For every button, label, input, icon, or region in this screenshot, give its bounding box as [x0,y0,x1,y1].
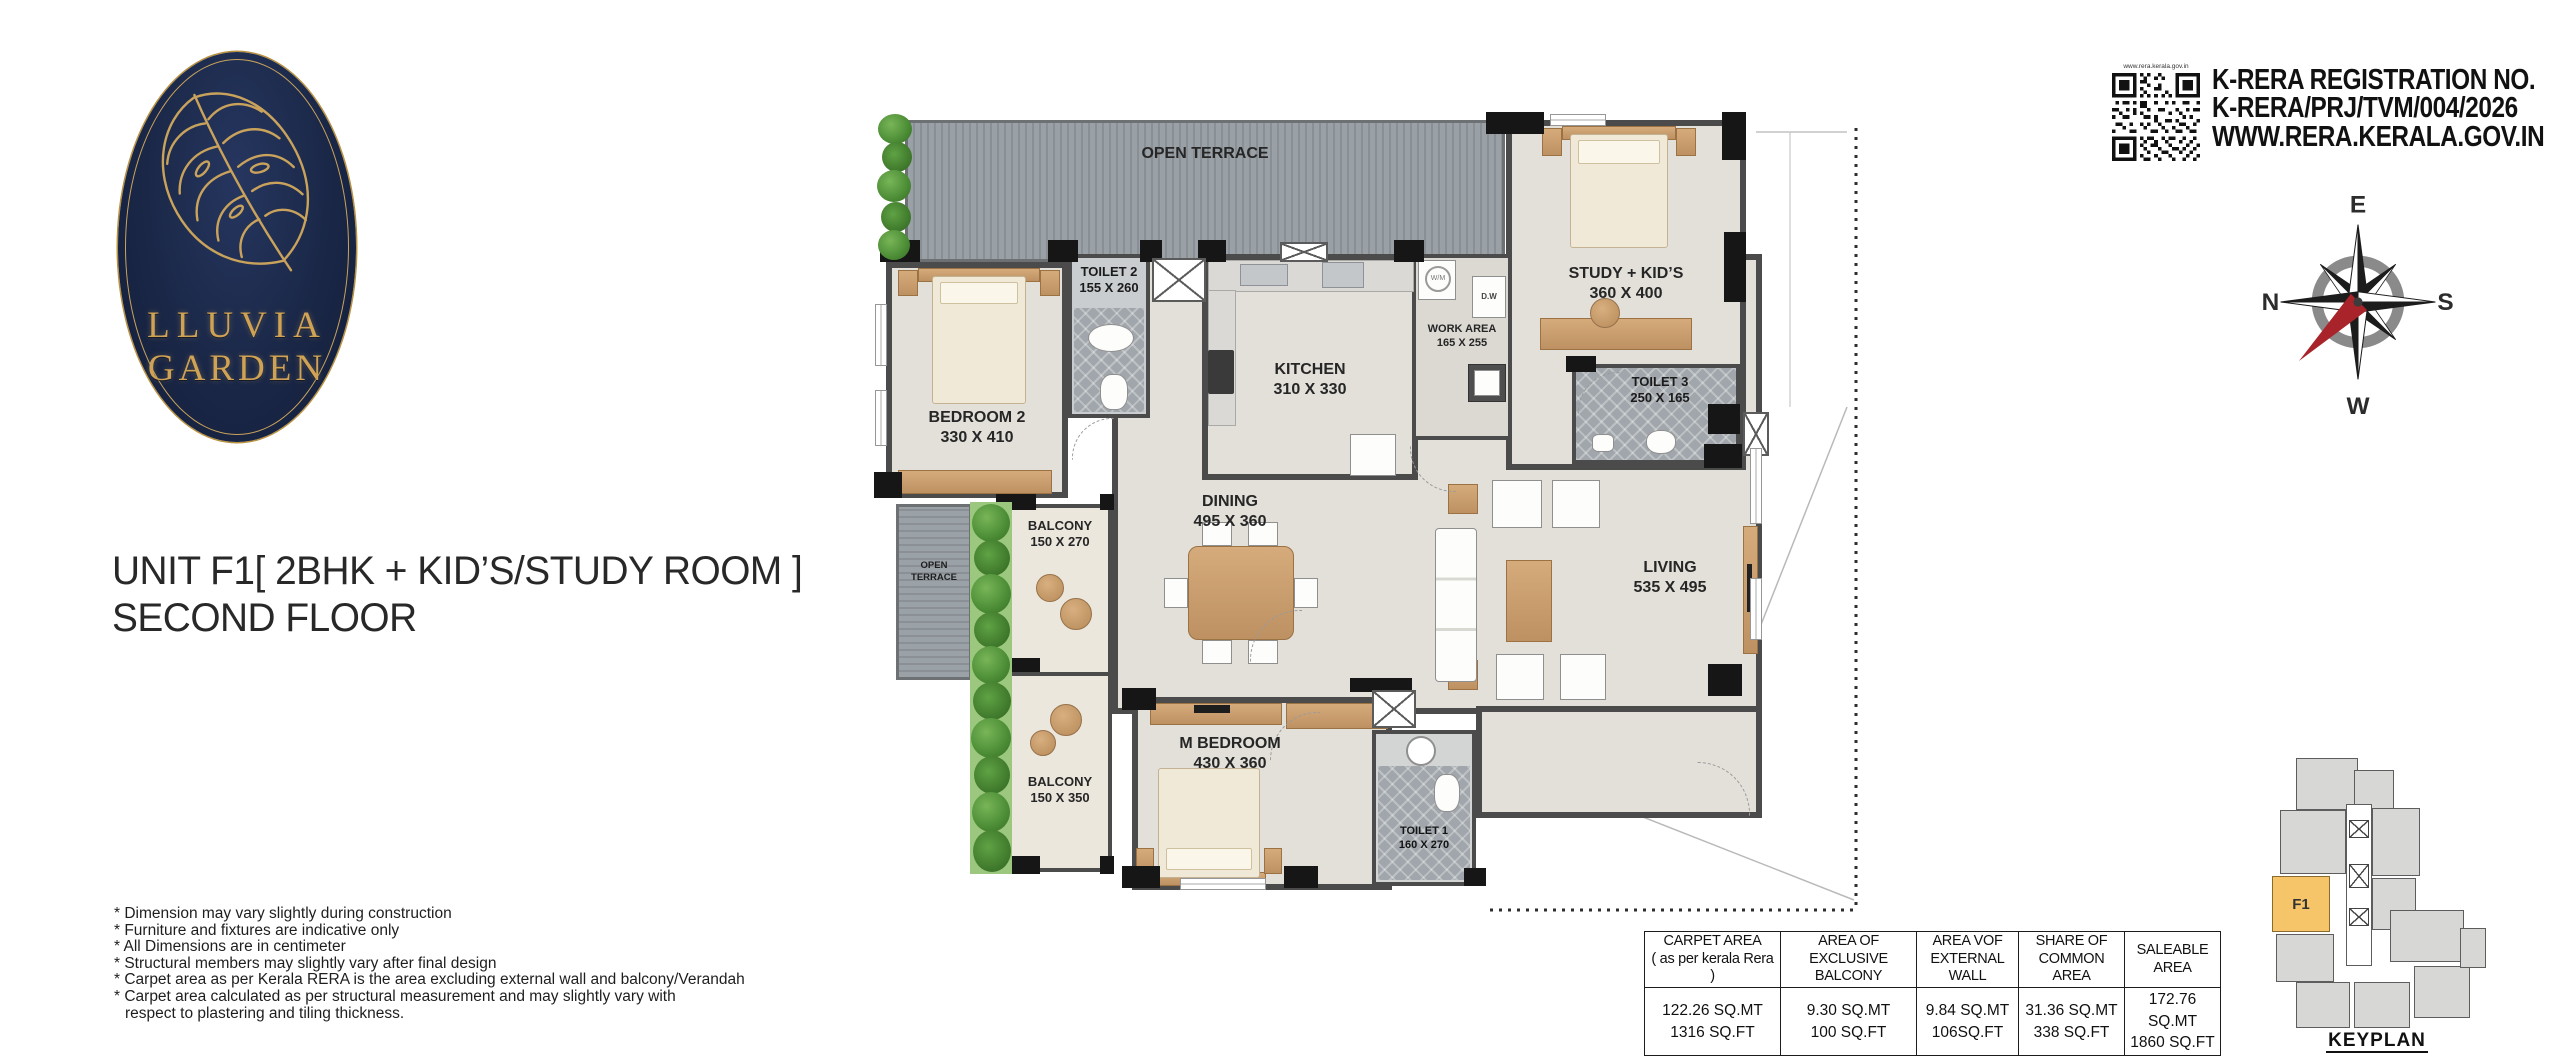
header-carpet-area: CARPET AREA ( as per kerala Rera ) [1645,932,1781,988]
plant [881,202,911,232]
wardrobe [898,470,1052,494]
qr-code [2112,73,2200,161]
toilet-wc [1100,374,1128,410]
value-saleable-area: 172.76 SQ.MT 1860 SQ.FT [2125,988,2221,1056]
value-external-wall: 9.84 SQ.MT 106SQ.FT [1917,988,2019,1056]
armchair [1560,654,1606,700]
label-work-area: WORK AREA 165 X 255 [1414,322,1510,351]
label-toilet3: TOILET 3 250 X 165 [1590,374,1730,407]
plant [974,612,1010,648]
label-bedroom2: BEDROOM 2 330 X 410 [892,408,1062,448]
plant [878,114,912,144]
label-study: STUDY + KID’S 360 X 400 [1526,264,1726,304]
wall-column [1122,688,1156,710]
kitchen-sink [1240,264,1288,286]
wall-column [1464,868,1486,886]
note-line: respect to plastering and tiling thickne… [114,1006,745,1023]
label-balcony2: BALCONY 150 X 350 [1010,774,1110,807]
balcony-table [1030,730,1056,756]
label-m-bedroom: M BEDROOM 430 X 360 [1140,734,1320,774]
window [875,304,887,366]
lluvia-garden-logo: LLUVIA GARDEN [118,52,356,442]
keyplan-block [2296,758,2358,810]
lift-shaft [1152,258,1206,302]
wall-column [1394,240,1424,262]
label-dining: DINING 495 X 360 [1150,492,1310,532]
room-open-terrace-left [896,504,972,680]
plant [882,142,912,172]
note-line: * Dimension may vary slightly during con… [114,906,745,923]
plant [973,830,1011,872]
toilet-basin [1406,736,1436,766]
header-saleable-area: SALEABLE AREA [2125,932,2221,988]
window [1550,114,1606,126]
plant [972,646,1010,684]
window [1750,448,1762,524]
plant [877,170,911,202]
logo-word-garden: GARDEN [118,347,356,390]
area-table: CARPET AREA ( as per kerala Rera ) AREA … [1644,931,2221,1056]
bed-pillow [940,282,1018,304]
label-living: LIVING 535 X 495 [1590,558,1750,598]
unit-title-line1: UNIT F1[ 2BHK + KID’S/STUDY ROOM ] [112,548,802,595]
armchair [1492,480,1542,528]
compass-label-east: E [2350,191,2366,218]
label-kitchen: KITCHEN 310 X 330 [1240,360,1380,400]
wall-column [1486,112,1544,134]
plant [972,792,1010,832]
keyplan-block [2460,928,2486,968]
toilet-basin [1592,434,1614,452]
value-carpet-area: 122.26 SQ.MT 1316 SQ.FT [1645,988,1781,1056]
value-common-area: 31.36 SQ.MT 338 SQ.FT [2019,988,2125,1056]
keyplan-label: KEYPLAN [2262,1030,2492,1052]
area-table-header-row: CARPET AREA ( as per kerala Rera ) AREA … [1645,932,2221,988]
note-line: * Carpet area as per Kerala RERA is the … [114,972,745,989]
logo-word-lluvia: LLUVIA [118,304,356,347]
plant [971,718,1011,758]
label-toilet1: TOILET 1 160 X 270 [1378,824,1470,853]
window [1180,878,1266,890]
plant [972,504,1010,542]
value-exclusive-balcony: 9.30 SQ.MT 100 SQ.FT [1781,988,1917,1056]
plant [973,682,1011,720]
note-line: * All Dimensions are in centimeter [114,939,745,956]
balcony-table [1036,574,1064,602]
keyplan-lift [2349,864,2369,888]
header-exclusive-balcony: AREA OF EXCLUSIVE BALCONY [1781,932,1917,988]
disclaimer-notes: * Dimension may vary slightly during con… [114,906,745,1022]
balcony-chair [1060,598,1092,630]
keyplan-block [2280,810,2346,874]
kitchen-counter [1208,260,1414,292]
nightstand [1542,128,1562,156]
duct-box [1280,242,1328,262]
dining-chair [1294,578,1318,608]
sofa [1435,528,1477,682]
dining-chair [1164,578,1188,608]
label-balcony1: BALCONY 150 X 270 [1010,518,1110,551]
unit-title-line2: SECOND FLOOR [112,595,802,642]
wall-column [1284,866,1318,888]
rera-line3: WWW.RERA.KERALA.GOV.IN [2212,123,2544,151]
wall-column [1708,404,1740,434]
nightstand [1264,848,1282,874]
wall-column [1100,494,1114,510]
compass-label-south: S [2437,289,2453,316]
keyplan-block [2414,966,2470,1018]
wall-column [1048,240,1078,262]
monstera-leaf-icon [136,58,336,298]
compass-label-west: W [2346,393,2370,420]
wall-column [874,472,902,498]
floor-plan: OPEN TERRACE STUDY + KID’S 360 X 400 TOI… [850,112,1862,914]
keyplan-block [2276,934,2334,982]
toilet-wc [1646,430,1676,454]
armchair [1496,654,1544,700]
armchair [1552,480,1600,528]
area-table-value-row: 122.26 SQ.MT 1316 SQ.FT 9.30 SQ.MT 100 S… [1645,988,2221,1056]
rera-registration-block: K-RERA REGISTRATION NO. K-RERA/PRJ/TVM/0… [2212,66,2544,151]
header-external-wall: AREA VOF EXTERNAL WALL [1917,932,2019,988]
kitchen-hob [1208,350,1234,394]
wall-column [1566,356,1596,372]
work-area-sink-bowl [1474,370,1500,396]
toilet-wc [1434,774,1460,812]
compass-label-north: N [2262,289,2280,316]
wall-column [1722,112,1746,160]
balcony-chair [1050,704,1082,736]
plant [971,574,1011,614]
bed-pillow [1166,848,1252,870]
toilet-tub [1088,324,1134,352]
window [875,390,887,446]
note-line: * Structural members may slightly vary a… [114,956,745,973]
compass-rose: E S W N [2258,188,2458,420]
rera-line1: K-RERA REGISTRATION NO. [2212,66,2544,94]
plant [878,230,910,260]
refrigerator [1350,434,1396,476]
tv-screen [1194,705,1230,713]
label-toilet2: TOILET 2 155 X 260 [1070,264,1148,297]
coffee-table [1506,560,1552,642]
keyplan-block [2354,982,2410,1028]
bed-pillow [1578,140,1660,164]
keyplan: F1 KEYPLAN [2262,752,2492,1052]
plant [974,540,1010,576]
unit-title: UNIT F1[ 2BHK + KID’S/STUDY ROOM ] SECON… [112,548,802,642]
wall-column [1704,444,1742,468]
keyplan-lift [2349,908,2369,926]
dishwasher: D.W [1472,276,1506,318]
washing-machine-door: W/M [1425,266,1451,292]
nightstand [1676,128,1696,156]
nightstand [1040,270,1060,296]
keyplan-block [2390,910,2464,962]
label-open-terrace-left: OPEN TERRACE [898,560,970,584]
keyplan-unit-f1: F1 [2272,876,2330,932]
qr-caption: www.rera.kerala.gov.in [2112,63,2200,70]
window [1750,578,1762,640]
keyplan-block [2296,982,2350,1028]
plant [974,756,1010,794]
nightstand [898,270,918,296]
dining-chair [1202,640,1232,664]
keyplan-lift [2349,820,2369,838]
room-balcony2 [1008,672,1112,872]
note-line: * Furniture and fixtures are indicative … [114,923,745,940]
wall-column [1708,664,1742,696]
wall-column [1122,866,1160,888]
label-open-terrace-top: OPEN TERRACE [1055,144,1355,164]
keyplan-block [2372,808,2420,876]
wall-column [1724,232,1746,302]
wall-column [1100,856,1114,874]
note-line: * Carpet area calculated as per structur… [114,989,745,1006]
rera-line2: K-RERA/PRJ/TVM/004/2026 [2212,94,2544,122]
header-common-area: SHARE OF COMMON AREA [2019,932,2125,988]
kitchen-appliance [1322,262,1364,288]
duct-box [1372,690,1416,728]
